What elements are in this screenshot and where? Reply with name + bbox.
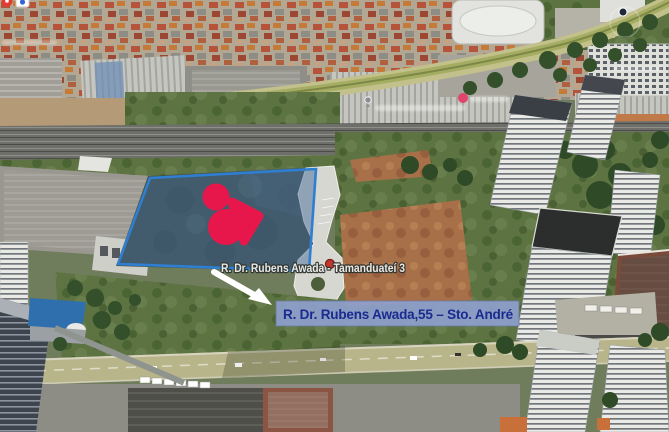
scene-terrain bbox=[0, 0, 669, 432]
info-tile-icon[interactable] bbox=[16, 0, 29, 7]
address-banner-text: R. Dr. Rubens Awada,55 – Sto. André bbox=[283, 306, 513, 322]
aerial-map-canvas: R. Dr. Rubens Awada - Tamanduateí 3 R. D… bbox=[0, 0, 669, 432]
address-banner: R. Dr. Rubens Awada,55 – Sto. André bbox=[276, 301, 519, 326]
pink-place-dot-icon[interactable] bbox=[458, 93, 468, 103]
poi-dot-icon[interactable] bbox=[619, 8, 627, 16]
aerial-map[interactable]: R. Dr. Rubens Awada - Tamanduateí 3 R. D… bbox=[0, 0, 669, 432]
industrial-south bbox=[0, 377, 520, 432]
dirt-strip bbox=[0, 98, 130, 128]
street-pin-label: R. Dr. Rubens Awada - Tamanduateí 3 bbox=[221, 261, 405, 275]
office-building-left bbox=[0, 242, 28, 306]
